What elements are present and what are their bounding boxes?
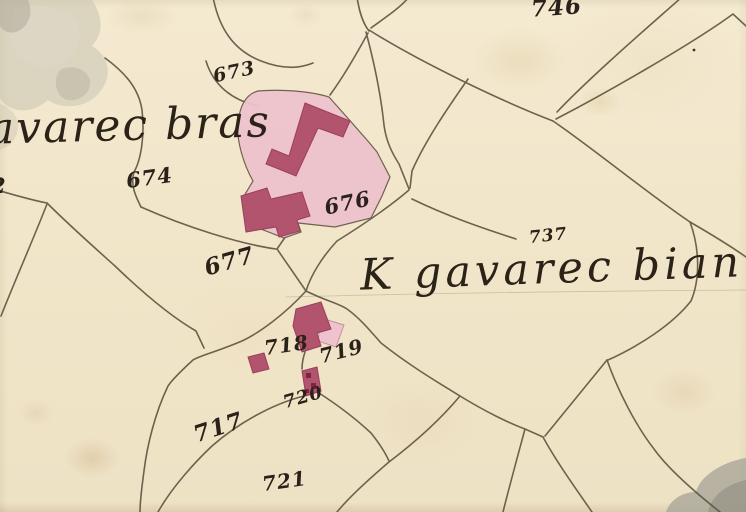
map-canvas[interactable]: avarec bras K gavarec bian 746 673 674 6…	[0, 0, 746, 512]
parcel-number-2: 2	[0, 175, 7, 196]
parcel-number-718: 718	[263, 332, 310, 358]
road-line-se-1	[553, 121, 690, 222]
road-line-wedge	[410, 79, 468, 188]
road-line-diagonal	[306, 291, 543, 437]
parcel-line-737-stub	[412, 199, 516, 239]
place-name-gavarec-bian: K gavarec bian	[359, 241, 744, 297]
road-line-top-b	[371, 0, 409, 28]
parcel-line-left-h	[0, 190, 47, 203]
building-720-spot-1	[306, 373, 311, 378]
parcel-line-719-south	[319, 393, 389, 461]
ink-speck	[693, 49, 696, 52]
parcel-number-721: 721	[261, 468, 308, 494]
road-line-ene	[369, 30, 553, 121]
road-line-x	[503, 429, 525, 512]
road-line-u	[545, 360, 607, 436]
road-line-sweep-lower	[556, 14, 746, 119]
parcel-number-737: 737	[528, 226, 568, 247]
road-line-top-a	[357, 0, 369, 31]
parcel-line-left-sw	[1, 204, 47, 316]
place-name-gavarec-bras: avarec bras	[0, 100, 272, 151]
parcel-line-717-ne	[47, 203, 204, 348]
road-line-t	[543, 437, 592, 512]
road-line-branch-y	[337, 396, 460, 512]
parcel-line-677-corner	[277, 233, 306, 291]
road-line-farm-west	[330, 33, 368, 95]
parcel-number-674: 674	[125, 164, 174, 191]
parcel-line-topleft-curve	[213, 0, 313, 67]
parcel-number-746: 746	[530, 0, 582, 21]
